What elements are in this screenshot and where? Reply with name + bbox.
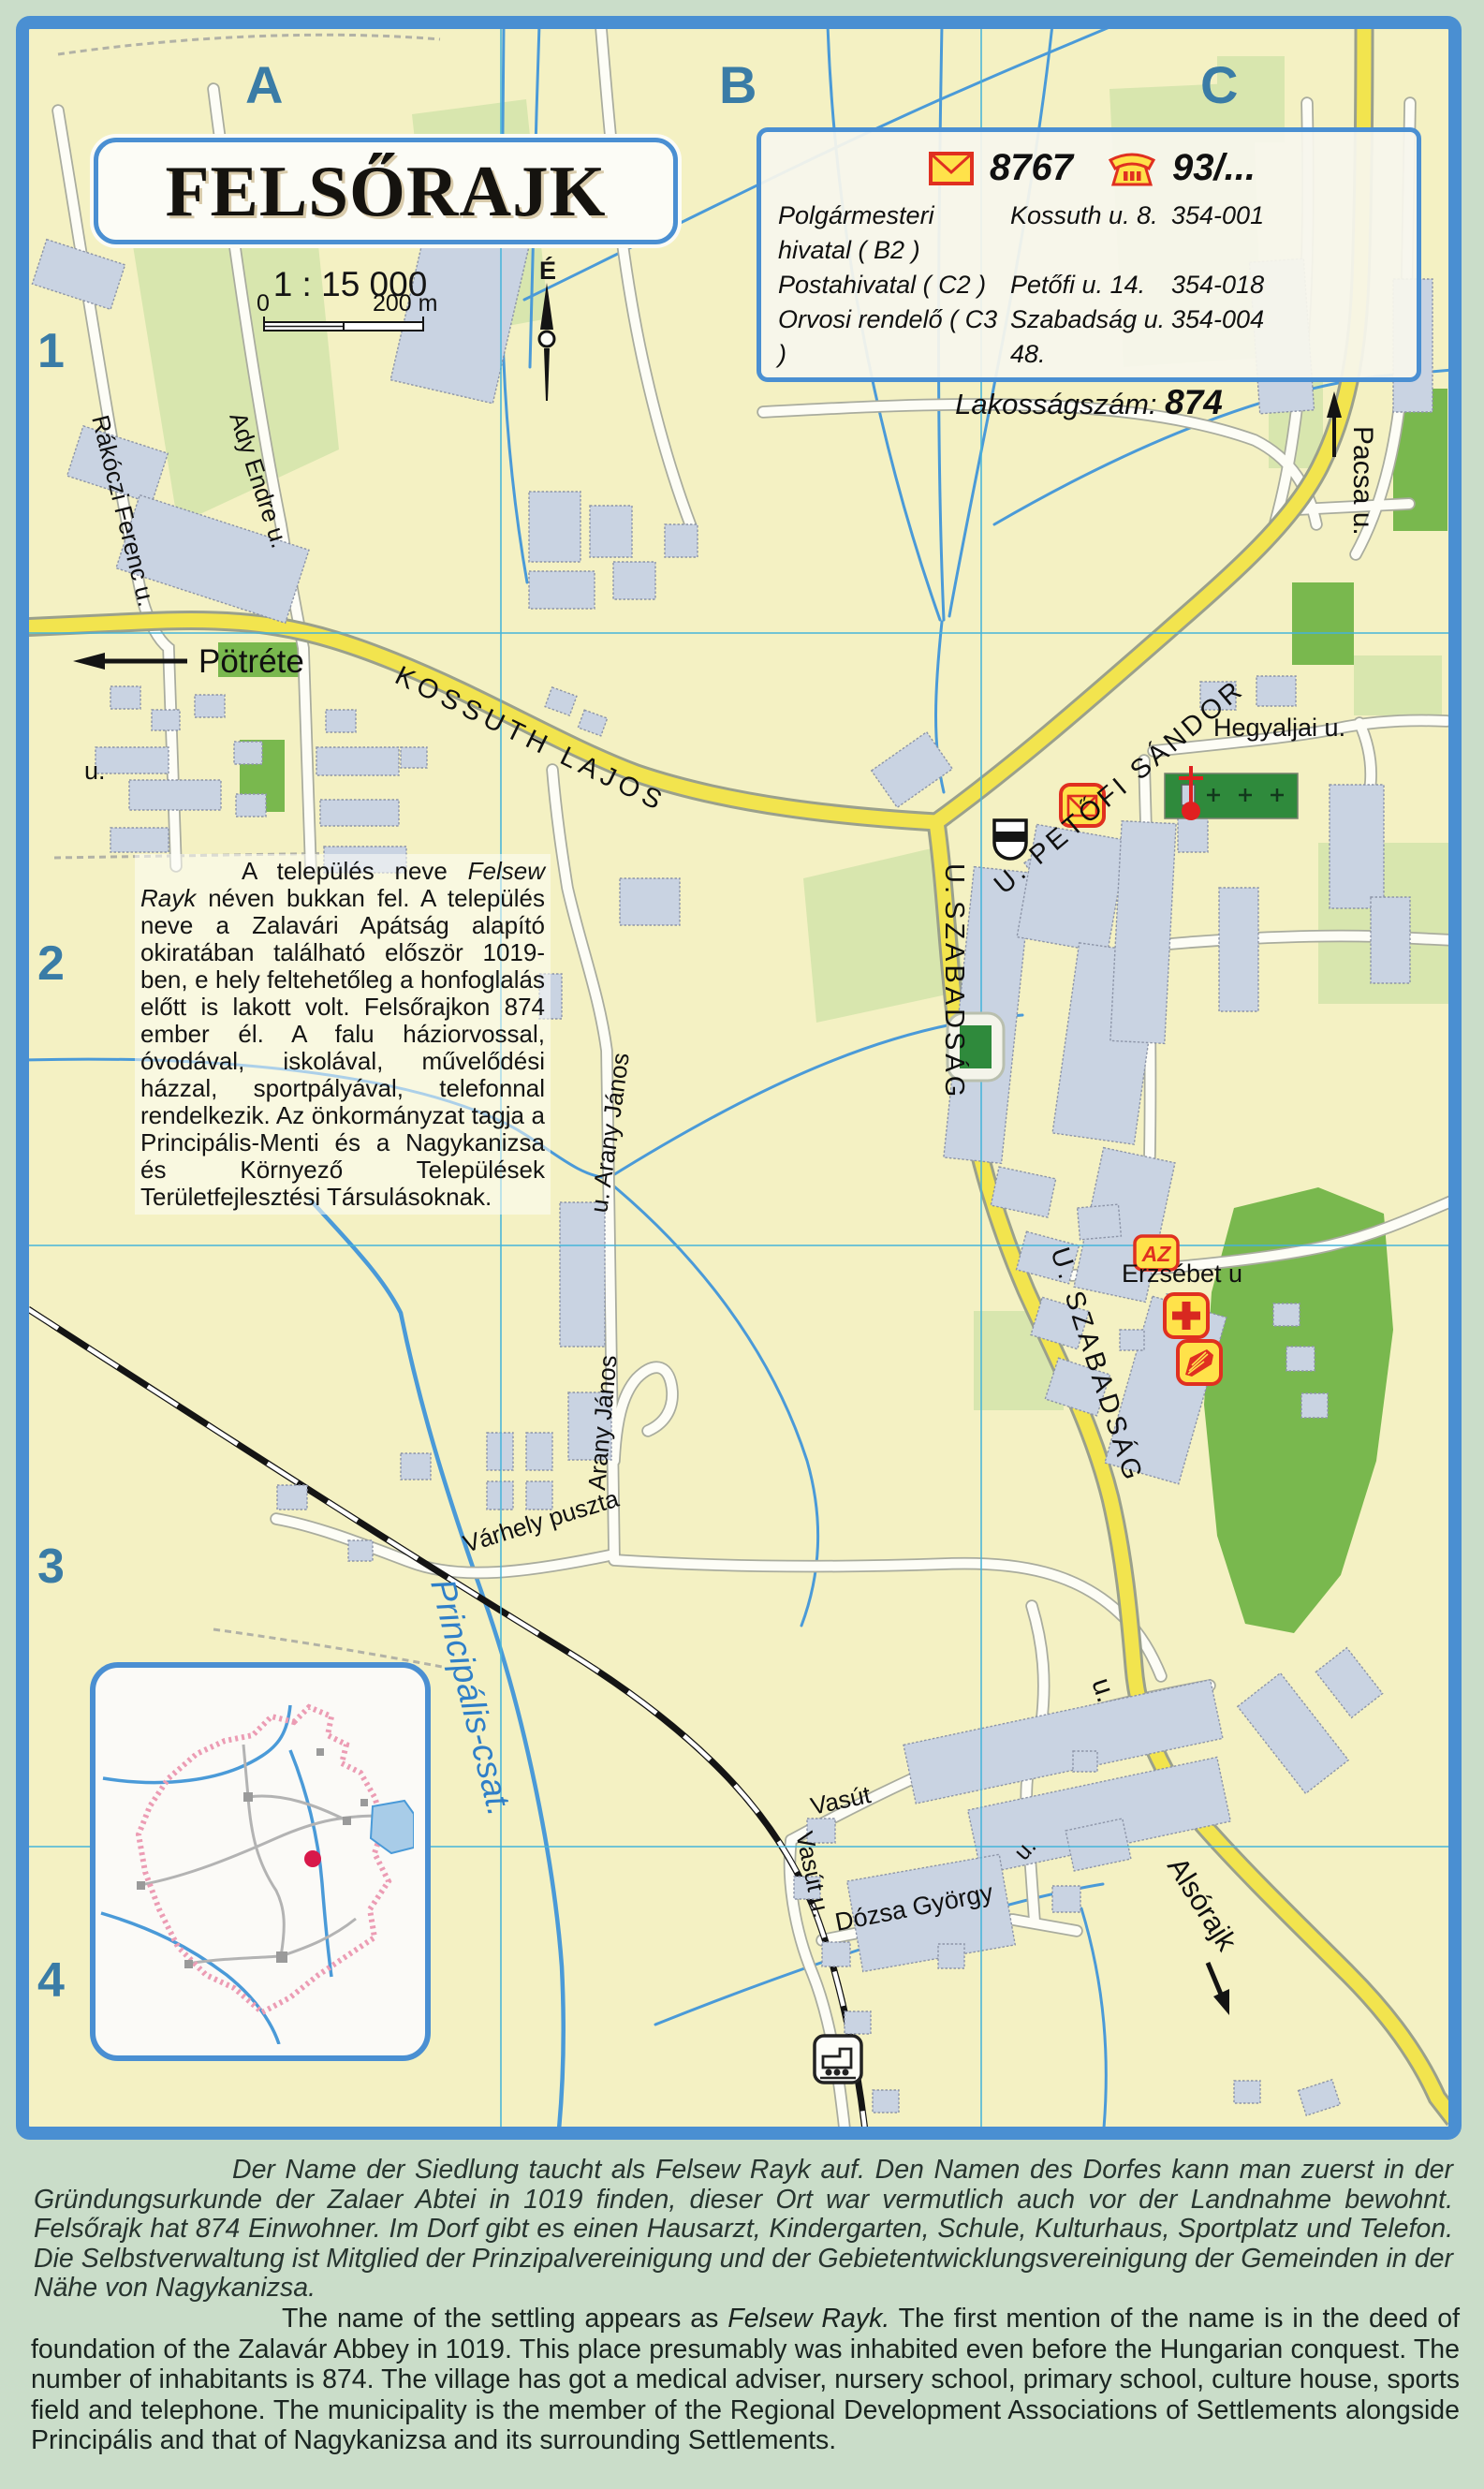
info-box: 8767 93/... Polgármesteri hivatal ( B2 )… — [757, 127, 1421, 382]
population-label: Lakosságszám: — [955, 388, 1156, 420]
place-address: Kossuth u. 8. — [1010, 199, 1171, 268]
info-box-header: 8767 93/... — [928, 147, 1417, 189]
population-line: Lakosságszám: 874 — [761, 383, 1417, 422]
inset-felsorajk-dot — [304, 1850, 321, 1867]
map-title-box: FELSŐRAJK — [94, 138, 678, 244]
en-italic-name: Felsew Rayk. — [727, 2304, 889, 2334]
info-row: Orvosi rendelő ( C3 ) Szabadság u. 48. 3… — [778, 302, 1400, 372]
grid-row-2: 2 — [37, 936, 65, 991]
en-part1: The name of the settling appears as — [282, 2304, 727, 2334]
map-title: FELSŐRAJK — [165, 150, 606, 233]
grid-col-a: A — [245, 55, 283, 114]
cemetery — [1165, 766, 1298, 820]
place-name: Polgármesteri hivatal ( B2 ) — [778, 199, 1010, 268]
grid-row-3: 3 — [37, 1539, 65, 1594]
info-row: Postahivatal ( C2 ) Petőfi u. 14. 354-01… — [778, 268, 1400, 302]
railway-station-icon — [815, 2036, 861, 2083]
street-hegyaljai: Hegyaljai u. — [1213, 714, 1345, 742]
place-phone: 354-004 — [1171, 302, 1400, 372]
hu-part2: néven bukkan fel. A település neve a Zal… — [140, 884, 545, 1211]
grid-row-4: 4 — [37, 1953, 65, 2008]
grid-col-c: C — [1200, 55, 1238, 114]
place-name: Postahivatal ( C2 ) — [778, 268, 1010, 302]
info-box-rows: Polgármesteri hivatal ( B2 ) Kossuth u. … — [778, 199, 1400, 372]
direction-potrete: Pötréte — [198, 643, 304, 680]
description-english: The name of the settling appears as Fels… — [31, 2304, 1460, 2456]
postal-code: 8767 — [990, 147, 1073, 189]
place-name: Orvosi rendelő ( C3 ) — [778, 302, 1010, 372]
street-erzsebet: Erzsébet u — [1122, 1259, 1242, 1288]
inset-roads — [140, 1745, 381, 1964]
place-phone: 354-018 — [1171, 268, 1400, 302]
description-german: Der Name der Siedlung taucht als Felsew … — [34, 2156, 1453, 2304]
street-szabadsag: SZABADSÁG — [939, 901, 970, 1100]
place-phone: 354-001 — [1171, 199, 1400, 268]
scale-ratio: 1 : 15 000 — [273, 265, 428, 303]
phone-prefix: 93/... — [1172, 147, 1256, 189]
place-address: Szabadság u. 48. — [1010, 302, 1171, 372]
description-hungarian: A település neve Felsew Rayk néven bukka… — [135, 854, 551, 1215]
inset-locator-map — [90, 1662, 431, 2061]
place-address: Petőfi u. 14. — [1010, 268, 1171, 302]
street-pacsa: Pacsa u. — [1347, 426, 1378, 536]
street-szabadsag-u: U. — [939, 863, 969, 896]
grid-col-b: B — [719, 55, 757, 114]
hu-part1: A település neve — [242, 857, 468, 885]
envelope-icon — [928, 150, 975, 187]
scale-zero: 0 — [257, 290, 270, 317]
street-u-potrete: u. — [84, 757, 106, 785]
phone-icon — [1107, 149, 1157, 188]
info-row: Polgármesteri hivatal ( B2 ) Kossuth u. … — [778, 199, 1400, 268]
grid-row-1: 1 — [37, 324, 65, 378]
medical-cross-icon — [1165, 1294, 1208, 1337]
north-label: É — [539, 256, 556, 285]
population-value: 874 — [1165, 383, 1223, 421]
book-icon — [1178, 1341, 1221, 1384]
